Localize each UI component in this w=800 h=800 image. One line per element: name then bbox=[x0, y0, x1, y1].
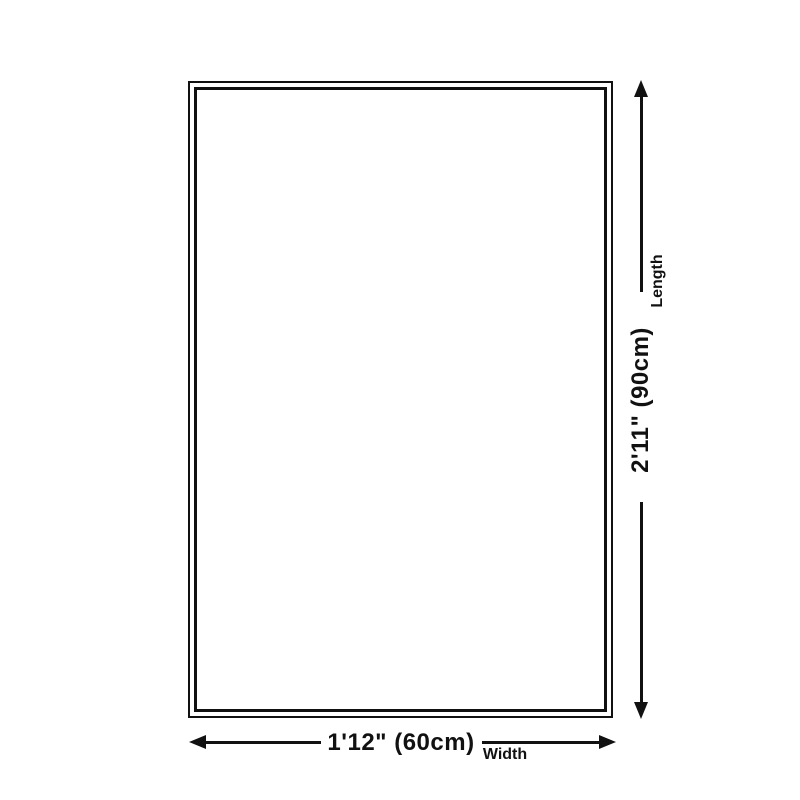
length-dimension-line-lower bbox=[640, 502, 643, 705]
length-axis-label: Length bbox=[649, 254, 667, 307]
width-dimension-line-left bbox=[203, 741, 321, 744]
dimension-diagram: Length 2'11" (90cm) 1'12" (60cm) Width bbox=[0, 0, 800, 800]
length-value-label: 2'11" (90cm) bbox=[627, 327, 655, 473]
length-dimension-line-upper bbox=[640, 94, 643, 292]
arrow-right-icon bbox=[599, 735, 616, 749]
product-outline-inner-border bbox=[194, 87, 607, 712]
width-axis-label: Width bbox=[483, 746, 527, 764]
width-dimension-line-right bbox=[482, 741, 602, 744]
product-outline bbox=[188, 81, 613, 718]
width-value-label: 1'12" (60cm) bbox=[327, 729, 474, 757]
arrow-down-icon bbox=[634, 702, 648, 719]
